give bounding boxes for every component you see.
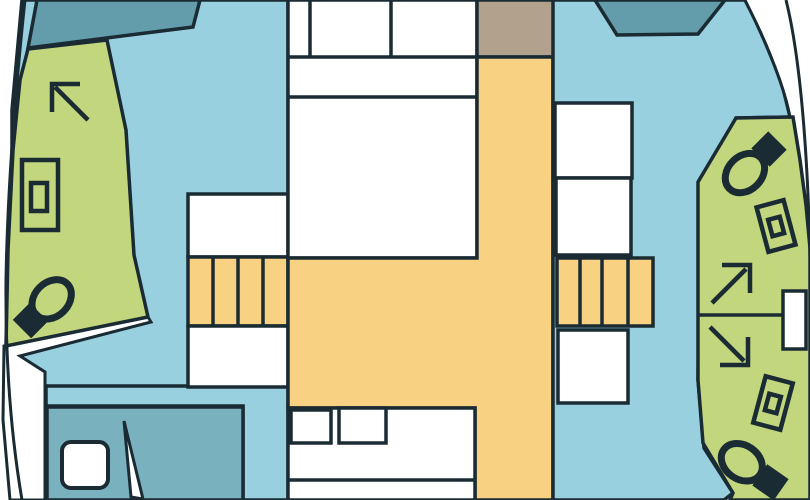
- galley-sink-right: [339, 408, 386, 443]
- right-step-upper: [555, 103, 632, 178]
- floor-plan-canvas: [0, 0, 810, 500]
- forward-berth-bed: [288, 0, 477, 258]
- bow-hatch: [477, 0, 558, 57]
- left-stairs-landing-top: [188, 194, 288, 257]
- right-stairs: [557, 258, 653, 326]
- galley-sink-left: [291, 410, 331, 443]
- right-step-lower: [556, 178, 631, 255]
- left-stairs-landing-bottom: [188, 326, 288, 387]
- right-stairs-landing: [558, 330, 628, 403]
- hatch-icon: [62, 442, 108, 488]
- right-head-door: [783, 291, 806, 349]
